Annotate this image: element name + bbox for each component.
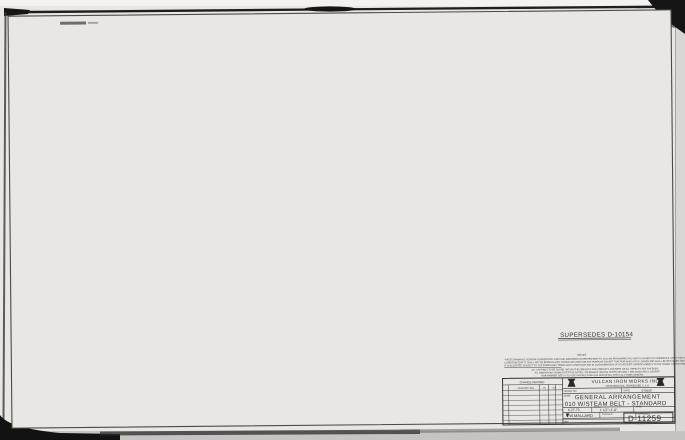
svg-text:DESCRIPTION: DESCRIPTION	[518, 387, 535, 390]
svg-text:070400: 070400	[642, 389, 652, 393]
svg-text:D-11259: D-11259	[628, 414, 662, 423]
svg-text:NAME: NAME	[564, 395, 571, 398]
svg-text:CHANGE RECORD: CHANGE RECORD	[520, 380, 545, 384]
svg-text:ORDER NO: ORDER NO	[564, 390, 577, 393]
svg-text:CHATTANOOGA, TENNESSEE, U.S.A.: CHATTANOOGA, TENNESSEE, U.S.A.	[606, 384, 650, 387]
svg-text:CHECKED: CHECKED	[602, 414, 613, 416]
svg-text:GENERAL ARRANGEMENT: GENERAL ARRANGEMENT	[575, 394, 661, 401]
svg-text:MADE: MADE	[636, 405, 643, 408]
svg-text:1 1/2"=1'-0": 1 1/2"=1'-0"	[600, 408, 618, 412]
svg-text:6-27-73: 6-27-73	[568, 408, 580, 412]
svg-text:VULCAN IRON WORKS INC: VULCAN IRON WORKS INC	[592, 378, 660, 384]
svg-text:REF: REF	[564, 421, 569, 424]
svg-text:NOTES: NOTES	[577, 353, 586, 357]
svg-text:DATE: DATE	[624, 389, 631, 392]
svg-text:V.W.MALLARD: V.W.MALLARD	[566, 413, 593, 418]
